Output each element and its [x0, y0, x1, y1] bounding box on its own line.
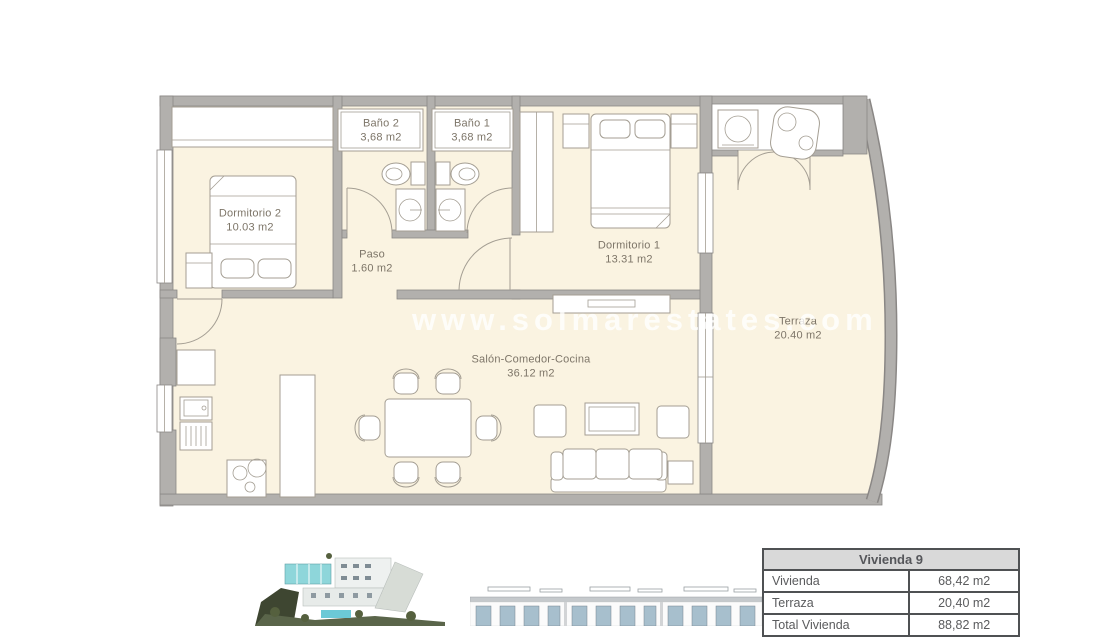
room-label-salon: Salón-Comedor-Cocina 36.12 m2: [472, 354, 591, 381]
row-label: Vivienda: [764, 571, 910, 591]
row-value: 88,82 m2: [910, 615, 1018, 635]
room-area: 3,68 m2: [360, 131, 401, 145]
facade-render-image: [470, 585, 762, 626]
table-row: Total Vivienda 88,82 m2: [764, 615, 1018, 635]
table-title: Vivienda 9: [764, 550, 1018, 571]
watermark-text: www.solmarestates.com: [412, 302, 878, 338]
table-row: Terraza 20,40 m2: [764, 593, 1018, 615]
area-summary-table: Vivienda 9 Vivienda 68,42 m2 Terraza 20,…: [762, 548, 1020, 637]
table-row: Vivienda 68,42 m2: [764, 571, 1018, 593]
room-name: Paso: [351, 249, 392, 263]
row-value: 20,40 m2: [910, 593, 1018, 613]
bedroom1-furniture: [520, 112, 697, 232]
room-name: Baño 1: [451, 118, 492, 132]
room-area: 13.31 m2: [598, 253, 660, 267]
room-name: Dormitorio 2: [219, 208, 281, 222]
room-label-dormitorio2: Dormitorio 2 10.03 m2: [219, 208, 281, 235]
room-name: Salón-Comedor-Cocina: [472, 354, 591, 368]
room-label-dormitorio1: Dormitorio 1 13.31 m2: [598, 240, 660, 267]
room-area: 36.12 m2: [472, 367, 591, 381]
room-name: Dormitorio 1: [598, 240, 660, 254]
floor-plan-page: Dormitorio 2 10.03 m2 Baño 2 3,68 m2 Bañ…: [0, 0, 1110, 626]
room-area: 10.03 m2: [219, 221, 281, 235]
room-area: 3,68 m2: [451, 131, 492, 145]
room-label-bano2: Baño 2 3,68 m2: [360, 118, 401, 145]
row-value: 68,42 m2: [910, 571, 1018, 591]
room-label-paso: Paso 1.60 m2: [351, 249, 392, 276]
row-label: Total Vivienda: [764, 615, 910, 635]
room-area: 1.60 m2: [351, 262, 392, 276]
room-label-bano1: Baño 1 3,68 m2: [451, 118, 492, 145]
room-name: Baño 2: [360, 118, 401, 132]
aerial-render-image: [255, 552, 445, 626]
row-label: Terraza: [764, 593, 910, 613]
